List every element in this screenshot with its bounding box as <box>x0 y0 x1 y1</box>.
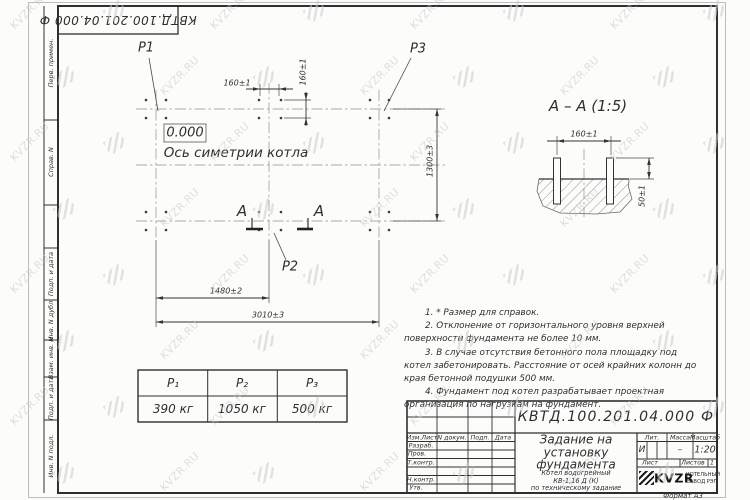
tb-sheet-label: Лист <box>642 460 658 467</box>
load-point-label-p1: Р1 <box>138 41 154 56</box>
tb-row-prov: Пров. <box>408 451 426 458</box>
load-point-label-p3: Р3 <box>410 42 426 57</box>
dim-1480: 1480±2 <box>210 287 242 296</box>
strip-label-perv-primen: Перв. примен. <box>47 39 55 88</box>
note-2: 2. Отклонение от горизонтального уровня … <box>404 320 704 346</box>
tb-row-nkontr: Н.контр. <box>407 476 435 483</box>
boiler-axis-label: Ось симетрии котла <box>164 145 308 161</box>
note-3: 3. В случае отсутствия бетонного пола пл… <box>404 347 704 387</box>
tb-lit-value: И <box>639 445 646 455</box>
tb-scale-value: 1:20 <box>694 445 715 456</box>
load-table-value-p2: 1050 кг <box>218 402 266 416</box>
kvzr-logo-mark-icon <box>639 471 654 485</box>
load-table-header-p3: Р₃ <box>306 376 318 390</box>
format-label: Формат А3 <box>663 492 703 500</box>
strip-label-vzam-inv: Взам. инв. N <box>47 337 55 379</box>
dim-160-section: 160±1 <box>570 130 597 139</box>
top-code-box-text: КВТД.100.201.04.000 Ф <box>39 13 196 27</box>
section-letter-left: А <box>237 202 247 220</box>
tb-mass-label: Масса <box>670 434 690 441</box>
tb-scale-label: Масштаб <box>690 434 720 441</box>
load-table-value-p3: 500 кг <box>292 402 332 416</box>
tb-col-izm-list: Изм.Лист <box>407 434 438 441</box>
dim-160-top-vertical: 160±1 <box>299 58 308 85</box>
technical-notes: 1. * Размер для справок. 2. Отклонение о… <box>404 307 704 413</box>
elevation-mark: 0.000 <box>166 126 203 141</box>
title-block-doc-number: КВТД.100.201.04.000 Ф <box>518 409 715 425</box>
section-view-geometry <box>537 158 632 214</box>
tb-col-n-dokum: N докум. <box>437 434 466 441</box>
tb-row-tkontr: Т.контр. <box>407 459 434 466</box>
dim-160-top-horizontal: 160±1 <box>223 79 250 88</box>
tb-sheets-value: 1 <box>710 460 714 467</box>
plan-centerlines <box>136 83 584 240</box>
tb-col-podp: Подп. <box>470 434 489 441</box>
strip-label-podp-data-2: Подп. и дата <box>47 376 55 420</box>
drawing-linework <box>0 0 750 500</box>
section-view-title: А – А (1:5) <box>549 97 627 115</box>
drawing-sheet: КВТД.100.201.04.000 Ф Перв. примен. Спра… <box>0 0 750 500</box>
strip-label-inv-podl: Инв. N подл. <box>47 435 55 478</box>
dim-1300: 1300±3 <box>426 145 435 177</box>
load-table-value-p1: 390 кг <box>153 402 193 416</box>
tb-sheets-label: Листов <box>681 460 705 467</box>
dim-50-section: 50±1 <box>638 185 647 207</box>
tb-lit-label: Лит. <box>645 434 660 441</box>
strip-label-sprav-n: Справ. N <box>47 147 55 177</box>
section-letter-right: А <box>314 202 324 220</box>
dim-3010: 3010±3 <box>252 311 284 320</box>
note-1: 1. * Размер для справок. <box>404 307 704 320</box>
tb-mass-value: – <box>678 445 683 455</box>
tb-row-razrab: Разраб. <box>409 443 434 450</box>
section-cut-marks <box>246 218 313 229</box>
title-block-document-title: Задание на установку фундамента <box>517 433 635 471</box>
tb-row-utv: Утв. <box>409 485 422 492</box>
strip-label-inv-dubl: Инв. N дубл. <box>47 299 55 342</box>
strip-label-podp-data-1: Подп. и дата <box>47 252 55 296</box>
load-point-label-p2: Р2 <box>282 260 298 275</box>
tb-col-data: Дата <box>495 434 511 441</box>
load-table-header-p2: Р₂ <box>236 376 248 390</box>
load-table-header-p1: Р₁ <box>167 376 179 390</box>
kvzr-logo-caption-line-1: КОТЕЛЬНЫЙ <box>686 472 720 478</box>
kvzr-logo-caption-line-2: ЗАВОД РЭП <box>687 479 718 485</box>
tb-subtitle-line-3: по техническому задание <box>531 484 621 492</box>
